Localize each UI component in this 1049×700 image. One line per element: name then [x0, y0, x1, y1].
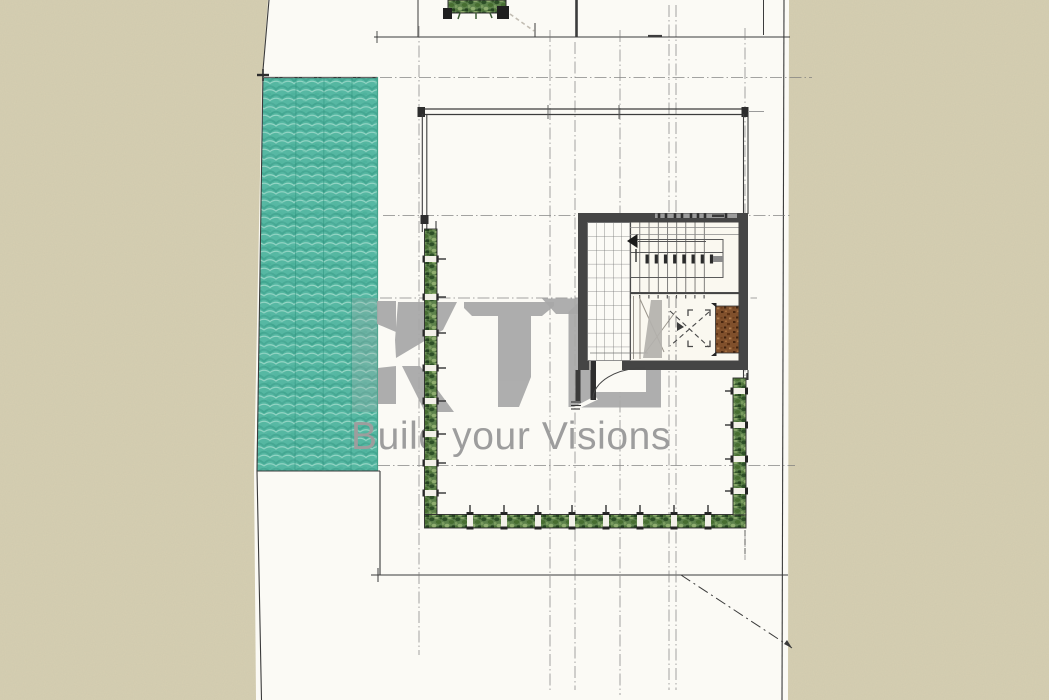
- svg-text:Build your Visions: Build your Visions: [351, 415, 671, 458]
